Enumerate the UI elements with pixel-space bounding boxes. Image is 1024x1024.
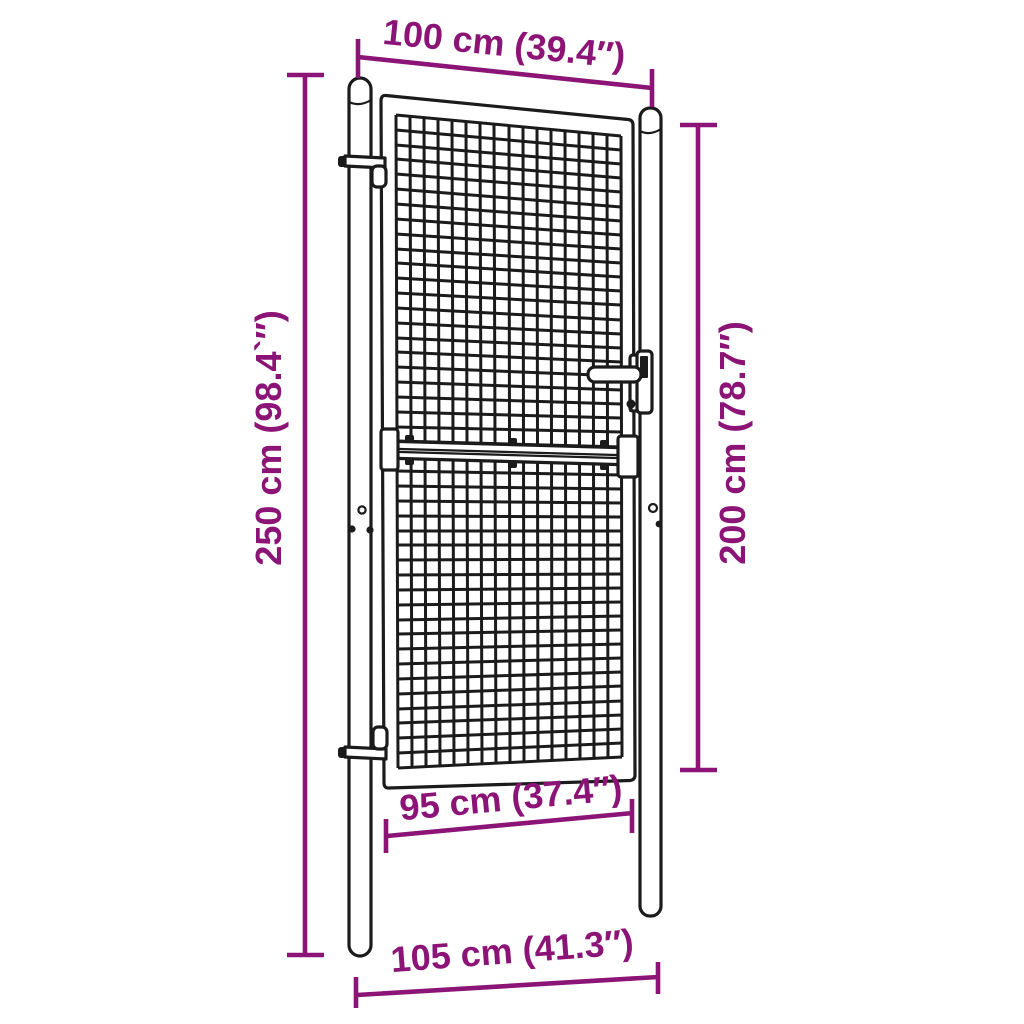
- dim-right-height: 200 cm (78.7″): [680, 125, 753, 770]
- dim-left-height-label: 250 cm (98.4`″): [248, 310, 289, 565]
- dim-left-height-line: [287, 75, 324, 955]
- dim-left-height: 250 cm (98.4`″): [248, 75, 324, 955]
- left-frame-bolt: [366, 526, 373, 533]
- mid-rail-right-bracket: [618, 436, 638, 477]
- left-post-body: [349, 78, 371, 956]
- mid-rail-left-bracket: [381, 429, 398, 470]
- right-post-bolt: [656, 521, 663, 528]
- dim-post-span-label: 105 cm (41.3″): [389, 921, 635, 980]
- left-post-bolt: [348, 525, 355, 532]
- bottom-hinge-hook: [373, 727, 387, 749]
- handle-lever: [588, 367, 641, 382]
- product-dimension-diagram: 100 cm (39.4″) 250 cm (98.4`″) 200 cm (7…: [0, 0, 1024, 1024]
- dim-right-height-label: 200 cm (78.7″): [712, 321, 753, 564]
- top-hinge-hook: [372, 166, 386, 187]
- dim-top-width: 100 cm (39.4″): [358, 11, 652, 107]
- left-fence-post: [349, 78, 371, 956]
- keyhole-stem: [629, 404, 632, 412]
- garden-gate-diagram-svg: 100 cm (39.4″) 250 cm (98.4`″) 200 cm (7…: [0, 0, 1024, 1024]
- dim-top-width-label: 100 cm (39.4″): [381, 11, 627, 76]
- dim-post-span: 105 cm (41.3″): [356, 921, 658, 1008]
